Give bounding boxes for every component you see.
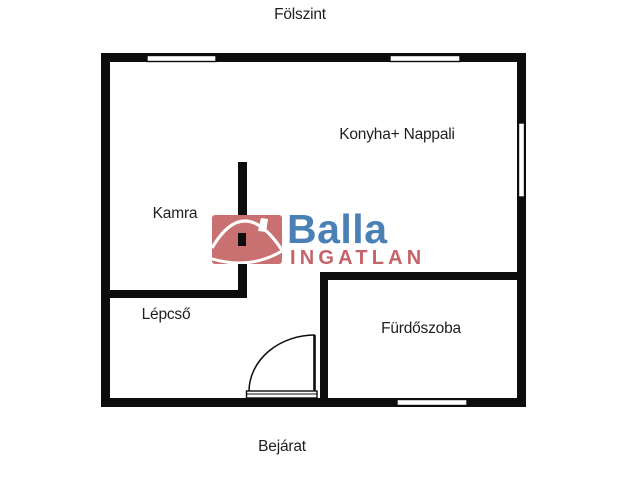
- floorplan-canvas: Fölszint Konyha+ Nappali Kamra Lépcső Fü…: [0, 0, 640, 480]
- wall-bathroom-vertical: [320, 272, 328, 407]
- room-label-kamra: Kamra: [153, 205, 198, 222]
- wall-bathroom-top: [320, 272, 517, 280]
- room-label-lepcso: Lépcső: [142, 306, 191, 323]
- wall-kamra-horizontal: [101, 290, 247, 298]
- entrance-label: Bejárat: [258, 438, 306, 455]
- logo-brand-text: Balla: [287, 209, 388, 250]
- wall-right: [517, 53, 526, 407]
- room-label-furdoszoba: Fürdőszoba: [381, 320, 461, 337]
- window-top-left: [147, 56, 216, 62]
- wall-left: [101, 53, 110, 407]
- window-right-wall: [519, 123, 525, 197]
- window-top-right: [390, 56, 460, 62]
- balla-house-icon: [212, 215, 282, 264]
- room-label-konyha-nappali: Konyha+ Nappali: [339, 126, 455, 143]
- plan-title: Fölszint: [274, 6, 326, 23]
- door-swing-arc: [249, 335, 315, 391]
- window-bathroom-bottom: [397, 400, 467, 406]
- logo-subtitle-text: INGATLAN: [290, 248, 425, 268]
